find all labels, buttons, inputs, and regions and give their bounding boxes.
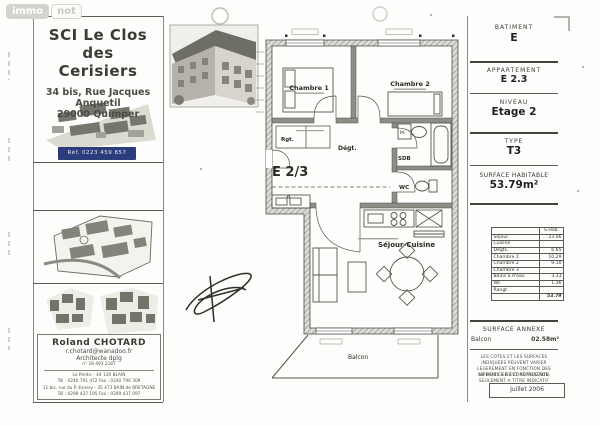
left-column-bottom-border (33, 402, 163, 403)
left-divider-1 (33, 162, 163, 163)
immonot-watermark: immo not (6, 4, 82, 19)
radiator (414, 231, 444, 237)
interior-walls (272, 46, 452, 208)
architect-title: Architecte dplg (38, 355, 160, 362)
project-address-line1: 34 bis, Rue Jacques Anquetil (35, 87, 161, 109)
left-column-right-border (163, 16, 164, 402)
plan-thumbnail-1 (46, 288, 94, 330)
surface-table-header: S.Hab. (540, 228, 564, 235)
scanned-floorplan-page: Chambre 1 Chambre 2 Rgt. Dégt. E 2/3 SDB… (0, 0, 600, 425)
coffee-table (348, 262, 366, 292)
annexe-room: Balcon (471, 336, 491, 343)
label-rgt: Rgt. (281, 137, 294, 143)
label-degt: Dégt. (338, 145, 357, 152)
annexe-label: SURFACE ANNEXE (468, 326, 560, 333)
info-sep-4 (470, 165, 558, 166)
project-title-line1: SCI Le Clos des (35, 26, 161, 62)
kitchen-counter-left (272, 195, 310, 208)
table-row: Chambre 29.10 (492, 260, 564, 267)
architect-email: r.chotard@wanadoo.fr (38, 348, 160, 355)
surface-section: SURFACE HABITABLE 53.79m² (468, 172, 560, 191)
info-sep-2 (470, 93, 558, 94)
window-bottom-2 (394, 328, 432, 344)
annexe-sep-bottom (470, 349, 558, 350)
site-plan-thumbnail (44, 216, 152, 278)
architect-office2-phone: Tél : 0299 437 195 Fax : 0299 437 097 (38, 392, 160, 398)
date-box: Juillet 2006 (489, 383, 565, 398)
toilet (416, 180, 438, 192)
annexe-row: Balcon 02.58m² (471, 336, 559, 343)
label-sejour: Séjour-Cuisine (378, 241, 435, 249)
surface-table: S.Hab. Séjour23.06 Cuisine Dégts.6.65 Ch… (491, 227, 564, 301)
legal-note-2: LE MOBILIER EST REPRESENTE SEULEMENT A T… (468, 372, 560, 384)
watermark-immo: immo (6, 4, 49, 19)
table-row: Chambre 110.29 (492, 254, 564, 261)
surface-table-total-row: 53.79 (492, 293, 564, 300)
architect-name: Roland CHOTARD (38, 338, 160, 348)
niveau-value: Etage 2 (468, 106, 560, 118)
bathtub (431, 123, 451, 166)
annexe-sep-top (470, 320, 558, 322)
surface-table-total: 53.79 (540, 293, 564, 300)
dining-set (376, 243, 438, 306)
architect-number: n° 18 493 2187 (38, 362, 160, 368)
annexe-value: 02.58m² (531, 336, 559, 343)
hole-punch-left (212, 8, 228, 24)
window-top-2 (378, 29, 420, 46)
batiment-label: BATIMENT (468, 24, 560, 31)
appartement-label: APPARTEMENT (468, 67, 560, 74)
info-sep-3 (470, 132, 558, 134)
info-sep-1 (470, 61, 558, 63)
kitchen-counter-right (364, 210, 414, 227)
table-row: Cuisine (492, 241, 564, 248)
watermark-not: not (51, 4, 82, 19)
label-balcon: Balcon (348, 354, 368, 361)
type-label: TYPE (468, 138, 560, 145)
batiment-value: E (468, 31, 560, 44)
type-section: TYPE T3 (468, 138, 560, 157)
table-row: Dégts.6.65 (492, 247, 564, 254)
label-machine: M. (400, 130, 405, 136)
bed-chambre2 (388, 92, 442, 116)
left-column-left-border (33, 16, 34, 402)
building-photo (170, 25, 258, 107)
table-row: Séjour23.06 (492, 234, 564, 241)
signature-scribble (186, 273, 251, 322)
title-block: SCI Le Clos des Cerisiers 34 bis, Rue Ja… (35, 26, 161, 120)
label-unit: E 2/3 (272, 165, 308, 180)
surface-table-header-row: S.Hab. (492, 228, 564, 235)
surface-label: SURFACE HABITABLE (468, 172, 560, 179)
niveau-section: NIVEAU Etage 2 (468, 99, 560, 118)
project-title-line2: Cerisiers (35, 62, 161, 80)
info-sep-5 (470, 203, 558, 205)
reference-badge: Réf. 0223 459 857 (58, 147, 136, 160)
window-top-1 (286, 29, 324, 46)
label-chambre2: Chambre 2 (390, 80, 430, 88)
tiled-area (416, 210, 442, 227)
window-bottom-1 (316, 328, 352, 344)
left-divider-2 (33, 210, 163, 211)
dimension-ticks (285, 35, 455, 38)
plan-thumbnail-2 (100, 288, 158, 334)
appartement-value: E 2.3 (468, 74, 560, 85)
hole-punch-right (373, 7, 387, 21)
label-wc: WC (399, 185, 409, 191)
table-row: Bains S.d'eau3.33 (492, 274, 564, 281)
label-sdb: SDB (398, 156, 411, 162)
sofa (313, 248, 337, 302)
table-row: Rangt (492, 287, 564, 294)
sdb-sink (412, 127, 427, 138)
table-row: Chambre 3 (492, 267, 564, 274)
project-address-line2: 29000 Quimper (35, 109, 161, 120)
surface-value: 53.79m² (468, 179, 560, 191)
left-divider-3 (33, 283, 163, 284)
batiment-section: BATIMENT E (468, 24, 560, 44)
label-chambre1: Chambre 1 (289, 84, 329, 92)
type-value: T3 (468, 145, 560, 157)
table-row: Wc1.36 (492, 280, 564, 287)
architect-block: Roland CHOTARD r.chotard@wanadoo.fr Arch… (37, 334, 161, 400)
appartement-section: APPARTEMENT E 2.3 (468, 67, 560, 85)
niveau-label: NIVEAU (468, 99, 560, 106)
